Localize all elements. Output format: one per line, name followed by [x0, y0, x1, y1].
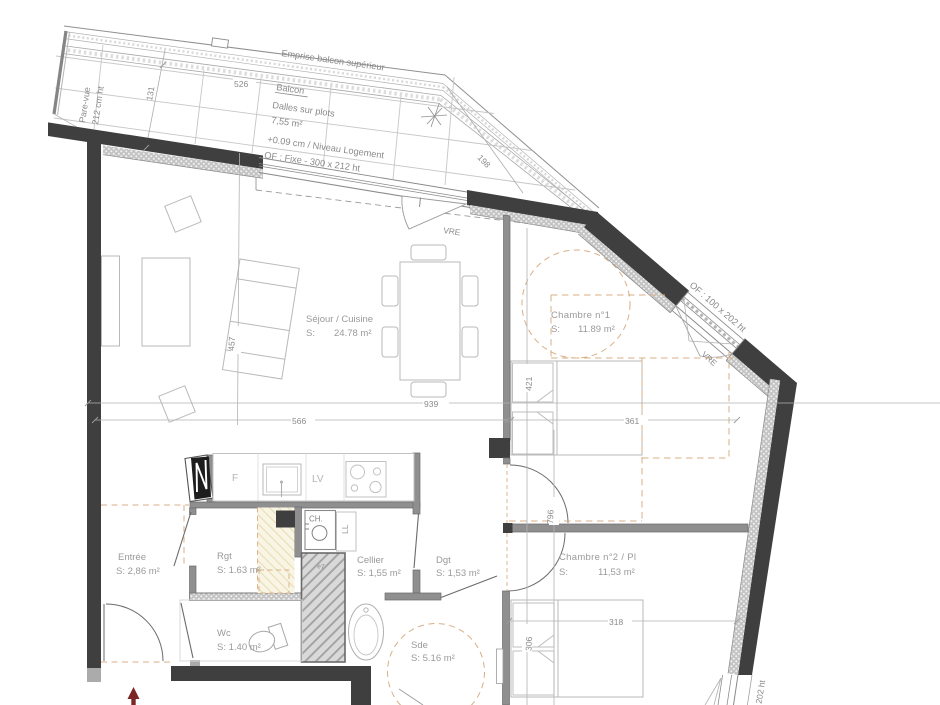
svg-text:24.78 m²: 24.78 m² — [334, 328, 372, 339]
svg-text:131: 131 — [144, 85, 156, 101]
svg-text:Rgt: Rgt — [217, 551, 232, 562]
svg-text:Sde: Sde — [411, 640, 428, 651]
svg-text:e7: e7 — [317, 563, 326, 571]
svg-text:Chambre n°2 / Pl: Chambre n°2 / Pl — [559, 552, 636, 563]
svg-text:S: 5.16 m²: S: 5.16 m² — [411, 653, 455, 664]
svg-text:LL: LL — [340, 524, 350, 534]
svg-text:CH.: CH. — [309, 515, 323, 524]
svg-text:F: F — [232, 473, 238, 484]
svg-text:Cellier: Cellier — [357, 555, 384, 566]
svg-text:Entrée: Entrée — [118, 552, 146, 563]
svg-text:Balcon: Balcon — [276, 82, 305, 96]
svg-text:S:: S: — [559, 567, 568, 578]
svg-text:S:: S: — [551, 324, 560, 335]
svg-text:S:: S: — [306, 328, 315, 339]
svg-text:Pare-vue: Pare-vue — [77, 86, 92, 123]
svg-text:526: 526 — [234, 79, 248, 89]
svg-text:Emprise balcon supérieur: Emprise balcon supérieur — [281, 48, 386, 72]
svg-text:306: 306 — [524, 636, 534, 651]
svg-text:361: 361 — [625, 416, 639, 426]
svg-text:Chambre n°1: Chambre n°1 — [551, 310, 610, 321]
svg-text:LV: LV — [312, 474, 324, 485]
svg-text:VRE: VRE — [700, 349, 720, 368]
svg-text:939: 939 — [424, 399, 438, 409]
svg-text:457: 457 — [226, 336, 237, 351]
svg-text:202 ht: 202 ht — [754, 679, 768, 705]
svg-text:Dgt: Dgt — [436, 555, 451, 566]
svg-text:S: 1.40 m²: S: 1.40 m² — [217, 642, 261, 653]
svg-text:VRE: VRE — [443, 225, 462, 237]
svg-text:796: 796 — [545, 509, 555, 524]
svg-text:212 cm ht: 212 cm ht — [90, 85, 106, 125]
svg-text:Wc: Wc — [217, 628, 231, 639]
svg-text:7,55 m²: 7,55 m² — [271, 115, 303, 129]
svg-text:S: 2,86 m²: S: 2,86 m² — [116, 566, 160, 577]
svg-text:566: 566 — [292, 416, 306, 426]
svg-text:11.89 m²: 11.89 m² — [578, 324, 615, 335]
svg-text:S: 1.63 m²: S: 1.63 m² — [217, 565, 261, 576]
svg-text:Séjour / Cuisine: Séjour / Cuisine — [306, 314, 373, 325]
svg-text:S: 1,55 m²: S: 1,55 m² — [357, 568, 401, 579]
svg-text:421: 421 — [524, 376, 534, 391]
svg-text:11,53 m²: 11,53 m² — [598, 567, 635, 578]
svg-text:318: 318 — [609, 617, 623, 627]
svg-text:S: 1,53 m²: S: 1,53 m² — [436, 568, 480, 579]
